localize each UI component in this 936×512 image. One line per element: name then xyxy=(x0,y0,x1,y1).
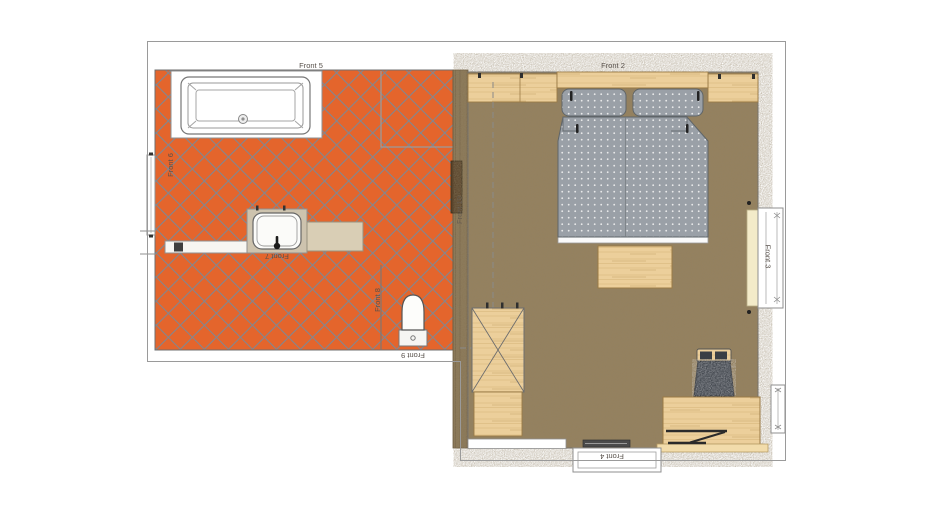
radiator[interactable] xyxy=(583,440,630,447)
wall-tick xyxy=(478,73,481,78)
label-front-7: Front 7 xyxy=(265,252,289,261)
bathtub-rim xyxy=(181,77,310,134)
window-hinge-dot xyxy=(747,201,751,205)
pillow-right xyxy=(633,89,703,116)
label-front-8: Front 8 xyxy=(373,288,382,312)
wall-shelf[interactable] xyxy=(165,241,247,253)
label-front-10: Front 10 xyxy=(455,196,464,224)
vanity-hinge-tick xyxy=(283,206,286,211)
chair-backrest-pad xyxy=(700,352,712,360)
bedside-cabinet-left[interactable] xyxy=(468,74,557,102)
toilet-bowl xyxy=(402,295,424,330)
chair-backrest-pad xyxy=(715,352,727,360)
label-front-4: Front 4 xyxy=(600,452,624,461)
desk-top xyxy=(663,397,760,445)
bathtub[interactable] xyxy=(171,71,322,138)
floor-plan-canvas[interactable]: Front 5 Front 7 Front 9 Front 8 Front 6 … xyxy=(0,0,936,512)
wall-tick xyxy=(718,74,721,79)
wardrobe[interactable] xyxy=(472,303,524,393)
wardrobe-tick xyxy=(516,303,519,309)
chair[interactable] xyxy=(694,349,734,396)
pillow-button xyxy=(570,91,573,101)
right-window[interactable]: Front 3 xyxy=(747,201,783,314)
wardrobe-tick xyxy=(486,303,489,309)
label-front-9: Front 9 xyxy=(401,351,425,360)
wardrobe-tick xyxy=(501,303,504,309)
shelf-dark-bracket xyxy=(174,243,183,252)
right-window-sill xyxy=(747,210,758,306)
window-hinge-dot xyxy=(747,310,751,314)
wall-tick xyxy=(520,73,523,78)
toilet-cistern xyxy=(399,330,427,346)
duvet-button xyxy=(576,124,579,133)
pillow-button xyxy=(697,91,700,101)
headboard[interactable] xyxy=(557,72,708,88)
floor-plan-stage[interactable]: Front 5 Front 7 Front 9 Front 8 Front 6 … xyxy=(0,0,936,512)
label-front-2: Front 2 xyxy=(601,61,625,70)
wall-tick xyxy=(752,74,755,79)
duvet xyxy=(558,117,708,237)
desk-front-edge xyxy=(657,444,768,452)
bedroom-room[interactable]: Front 4 Front 3 Front 2 xyxy=(460,61,785,472)
desk[interactable] xyxy=(657,397,768,452)
bathroom-room[interactable]: Front 5 Front 7 Front 9 Front 8 Front 6 xyxy=(140,61,453,360)
bedside-cabinet-right[interactable] xyxy=(708,74,758,102)
faucet xyxy=(274,243,280,249)
foot-bench[interactable] xyxy=(598,246,672,288)
label-front-3: Front 3 xyxy=(764,245,773,269)
mattress-edge xyxy=(558,237,708,243)
duvet-button xyxy=(686,124,689,133)
bathtub-drain-center xyxy=(241,117,244,120)
small-right-window[interactable] xyxy=(771,385,785,433)
vanity-hinge-tick xyxy=(256,206,259,211)
label-front-6: Front 6 xyxy=(166,153,175,177)
window-hinge-mark xyxy=(149,153,153,156)
window-hinge-mark xyxy=(149,235,153,238)
countertop[interactable] xyxy=(307,222,363,251)
label-front-5: Front 5 xyxy=(299,61,323,70)
bottom-wall-step xyxy=(468,439,566,449)
chair-seat-texture xyxy=(694,361,734,396)
dresser[interactable] xyxy=(474,392,522,436)
